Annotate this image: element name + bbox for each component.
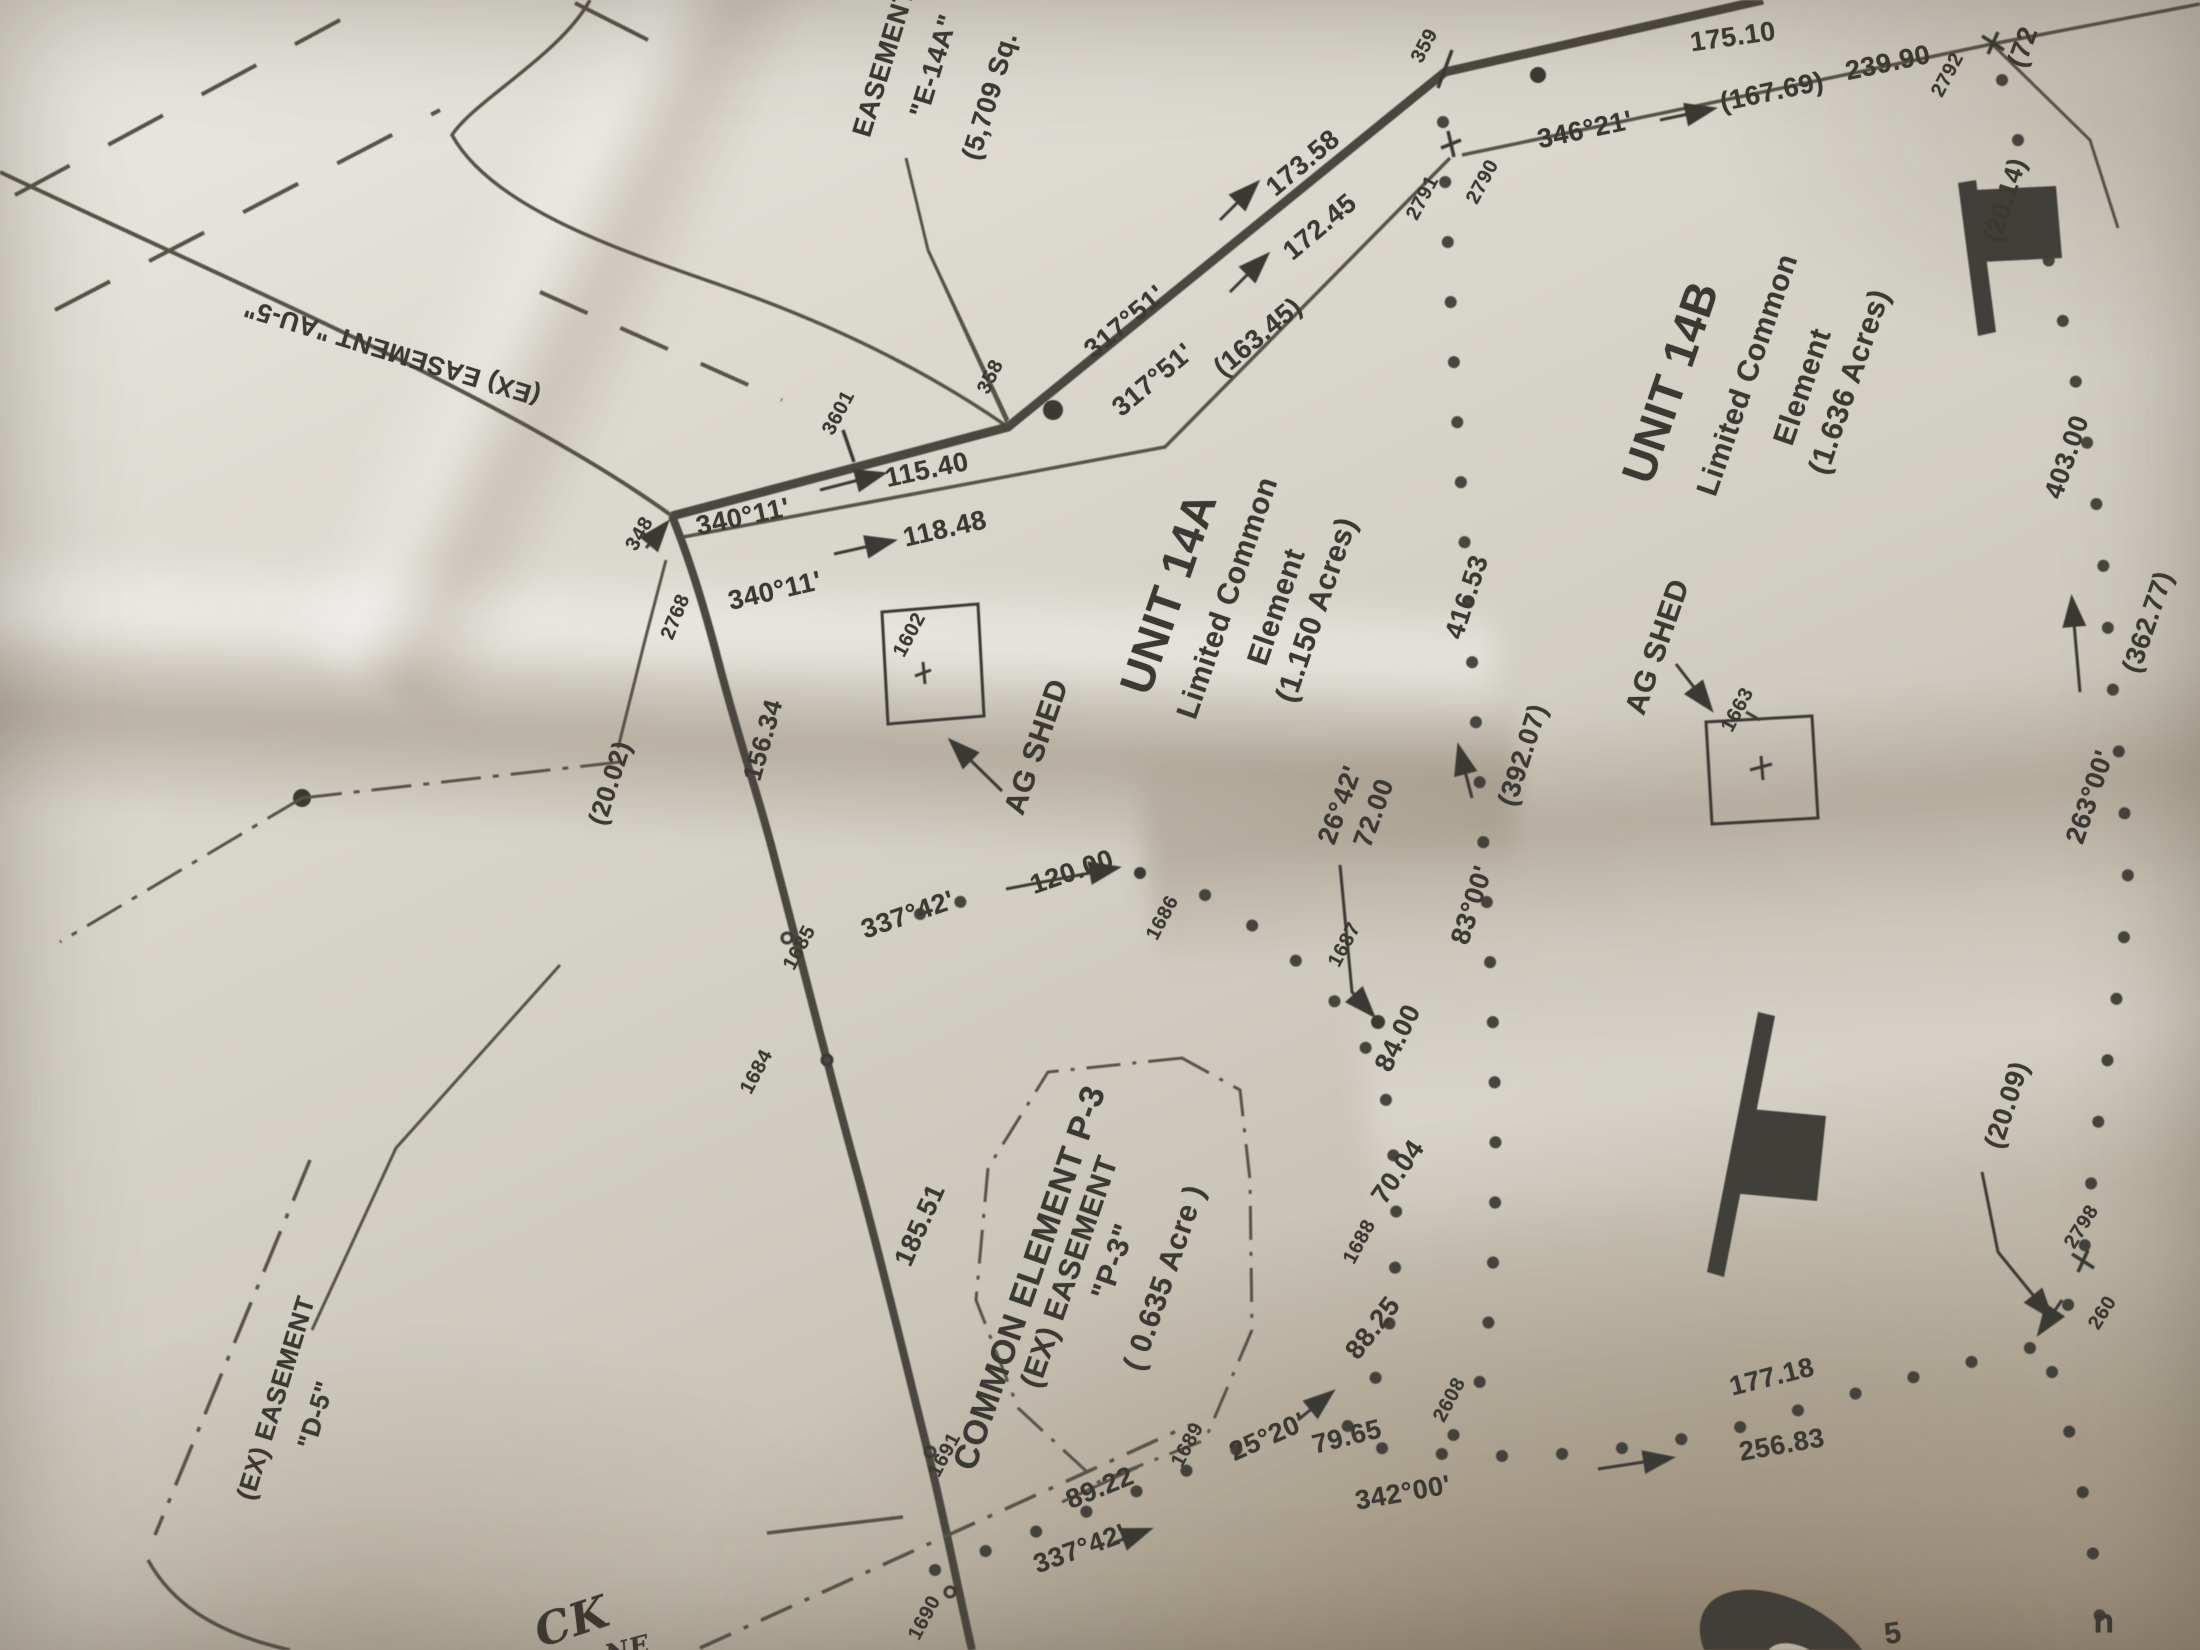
edge-text-n: n xyxy=(2093,1603,2114,1642)
bearing-317-51-b: 317°51' xyxy=(1106,337,1200,423)
dist-403-00: 403.00 xyxy=(2038,411,2095,503)
point-1684: 1684 xyxy=(736,1046,778,1098)
ag-shed-left-label: AG SHED xyxy=(998,675,1076,819)
dist-89-22: 89.22 xyxy=(1061,1460,1138,1515)
point-1686: 1686 xyxy=(1142,892,1184,944)
point-2790: 2790 xyxy=(1462,156,1504,208)
bearing-83-00: 83°00' xyxy=(1445,862,1499,949)
dist-20-14: (20.14) xyxy=(1977,154,2033,246)
dist-173-58: 173.58 xyxy=(1260,123,1346,202)
dist-115-40: 115.40 xyxy=(882,446,971,494)
dim-20-02: (20.02) xyxy=(582,737,638,829)
point-348: 348 xyxy=(621,513,659,555)
bearing-337-42-b: 337°42' xyxy=(1029,1518,1130,1580)
point-2608: 2608 xyxy=(1429,1374,1471,1426)
bearing-346-21: 346°21' xyxy=(1535,105,1636,155)
dist-172-45: 172.45 xyxy=(1277,187,1363,266)
ag-shed-right-label: AG SHED xyxy=(1619,575,1697,719)
dist-362-77: (362.77) xyxy=(2116,567,2180,677)
dist-256-83: 256.83 xyxy=(1737,1422,1827,1467)
label-layer: EASEMENT"E-14A"(5,709 Sq.(EX) EASEMENT "… xyxy=(0,0,2200,1650)
dist-392-07: (392.07) xyxy=(1492,700,1554,810)
dist-175-10: 175.10 xyxy=(1688,16,1778,59)
point-1602: 1602 xyxy=(889,609,931,661)
point-1663: 1663 xyxy=(1717,684,1759,736)
dist-416-53: 416.53 xyxy=(1439,551,1495,643)
edge-text-5: 5 xyxy=(1882,1616,1904,1650)
common-element-title: COMMON ELEMENT P-3 xyxy=(946,1081,1114,1475)
dist-118-48: 118.48 xyxy=(900,504,990,553)
dist-177-18: 177.18 xyxy=(1726,1352,1817,1403)
easement-e14a-line2: "E-14A" xyxy=(904,11,965,122)
bearing-25-20: 25°20' xyxy=(1225,1406,1312,1467)
dist-79-65: 79.65 xyxy=(1309,1413,1385,1460)
bearing-263-00: 263°00' xyxy=(2060,746,2121,847)
point-1688: 1688 xyxy=(1339,1216,1381,1268)
point-359: 359 xyxy=(1407,25,1444,67)
bearing-342-00: 342°00' xyxy=(1353,1469,1453,1516)
point-260: 260 xyxy=(2084,1292,2122,1334)
point-1687: 1687 xyxy=(1324,919,1366,971)
dist-167-69: (167.69) xyxy=(1717,66,1827,118)
common-element-line4: ( 0.635 Acre ) xyxy=(1117,1181,1212,1376)
point-3601: 3601 xyxy=(818,387,860,439)
dist-72-partial: (72 xyxy=(2001,23,2044,72)
dist-156-34: 156.34 xyxy=(737,696,790,784)
dist-185-51: 185.51 xyxy=(888,1179,951,1270)
point-1685: 1685 xyxy=(779,922,821,974)
easement-d5-line2: "D-5" xyxy=(291,1377,341,1453)
easement-e14a-line3: (5,709 Sq. xyxy=(956,28,1024,163)
dist-70-04: 70.04 xyxy=(1365,1134,1431,1210)
bearing-340-11-b: 340°11' xyxy=(725,565,825,617)
dist-84-00: 84.00 xyxy=(1369,999,1428,1076)
point-2792: 2792 xyxy=(1927,49,1969,101)
point-1689: 1689 xyxy=(1167,1419,1209,1471)
easement-e14a-line1: EASEMENT xyxy=(847,0,922,141)
point-358: 358 xyxy=(973,356,1009,398)
point-2768: 2768 xyxy=(657,591,696,643)
point-1690: 1690 xyxy=(904,1592,946,1644)
dist-163-45: (163.45) xyxy=(1208,291,1309,382)
bearing-340-11-a: 340°11' xyxy=(693,492,792,542)
bearing-317-51-a: 317°51' xyxy=(1078,279,1172,365)
dist-20-09: (20.09) xyxy=(1978,1058,2035,1153)
point-2791: 2791 xyxy=(1402,172,1444,224)
bearing-337-42-a: 337°42' xyxy=(857,885,958,946)
point-2798: 2798 xyxy=(2060,1201,2104,1253)
dist-88-25: 88.25 xyxy=(1339,1291,1407,1366)
easement-au5-label: (EX) EASEMENT "AU-5" xyxy=(240,292,544,412)
dist-239-90: 239.90 xyxy=(1843,39,1934,87)
dist-120-00: 120.00 xyxy=(1026,843,1118,900)
plat-map-photo: EASEMENT"E-14A"(5,709 Sq.(EX) EASEMENT "… xyxy=(0,0,2200,1650)
